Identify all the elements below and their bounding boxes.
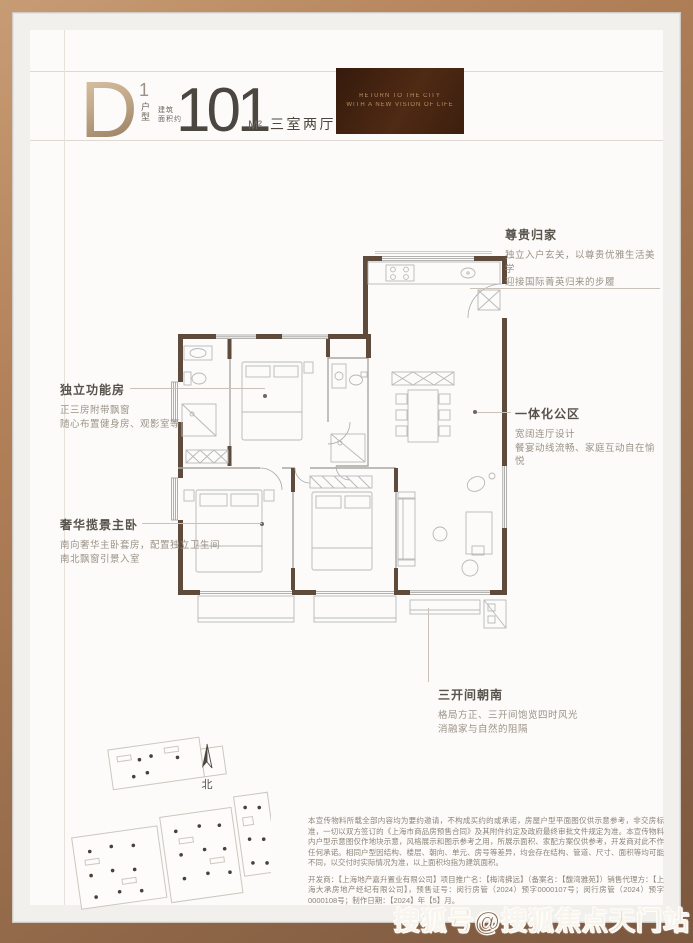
annotation-line: 餐宴动线流畅、家庭互动自在愉悦 (515, 442, 663, 469)
floor-plan (170, 250, 510, 640)
area-unit: M² (248, 118, 262, 132)
disclaimer: 本宣传物料所载全部内容均为要约邀请，不构成买约的或承诺，房屋户型平面图仅供示意参… (308, 816, 664, 912)
leader-master-bedroom (142, 523, 262, 524)
living-room-icon (398, 473, 495, 576)
annotation-title: 一体化公区 (515, 405, 663, 422)
bedroom2-bed-icon (310, 476, 372, 570)
banner-line2: WITH A NEW VISION OF LIFE (346, 101, 453, 110)
annotation-line: 格局方正、三开间饱览四时风光 (438, 709, 578, 723)
annotation-line: 随心布置健身房、观影室等 (60, 418, 180, 432)
unit-number-label: 户型 (141, 102, 152, 122)
leader-dot (473, 410, 477, 414)
annotation-title: 奢华揽景主卧 (60, 516, 220, 533)
annotation-south-facing: 三开间朝南 格局方正、三开间饱览四时风光 消融家与自然的阻隔 (438, 686, 578, 736)
north-arrow-icon (199, 742, 215, 770)
banner-line1: RETURN TO THE CITY (359, 92, 441, 101)
site-plan-icon (56, 730, 271, 920)
annotation-line: 消融家与自然的阻隔 (438, 723, 578, 737)
poster-page: D 1 户型 建筑 面积约 101 M² 三室两厅两卫 RETURN TO TH… (30, 30, 663, 905)
plan-walls (178, 256, 507, 595)
north-label: 北 (197, 776, 217, 792)
plan-windows (172, 252, 507, 595)
annotation-title: 独立功能房 (60, 381, 180, 398)
annotation-line: 独立入户玄关，以尊贵优雅生活美学 (505, 249, 663, 276)
functional-room-bed-icon (242, 362, 313, 440)
annotation-line: 正三房附带飘窗 (60, 404, 180, 418)
unit-number: 1 (139, 80, 149, 101)
poster-frame: D 1 户型 建筑 面积约 101 M² 三室两厅两卫 RETURN TO TH… (0, 0, 693, 943)
annotation-title: 三开间朝南 (438, 686, 578, 703)
disclaimer-para1: 本宣传物料所载全部内容均为要约邀请，不构成买约的或承诺，房屋户型平面图仅供示意参… (308, 816, 664, 869)
annotation-entry: 尊贵归家 独立入户玄关，以尊贵优雅生活美学 迎接国际菁英归来的步履 (505, 226, 663, 290)
leader-public-area (475, 412, 511, 413)
leader-entry (470, 288, 660, 289)
unit-letter: D (80, 70, 138, 150)
balcony-icon (198, 596, 506, 628)
dining-set-icon (392, 372, 454, 442)
leader-south-facing (428, 608, 429, 682)
annotation-title: 尊贵归家 (505, 226, 663, 243)
north-indicator: 北 (197, 742, 217, 792)
plan-doors (260, 284, 502, 490)
area-value: 101 (176, 80, 267, 142)
leader-functional-room (130, 388, 265, 389)
bathroom1-fixtures-icon (182, 346, 228, 463)
annotation-line: 宽阔连厅设计 (515, 428, 663, 442)
header-banner: RETURN TO THE CITY WITH A NEW VISION OF … (336, 68, 464, 134)
annotation-line: 南向奢华主卧套房，配置独立卫生间 (60, 539, 220, 553)
floor-plan-area (170, 250, 510, 640)
plan-leader-dots (260, 394, 267, 526)
kitchen-counter-icon (368, 262, 500, 310)
plan-wall-openings (177, 255, 508, 596)
bathroom2-fixtures-icon (331, 364, 367, 462)
annotation-public-area: 一体化公区 宽阔连厅设计 餐宴动线流畅、家庭互动自在愉悦 (515, 405, 663, 469)
watermark: 搜狐号@搜狐焦点天门站 (394, 901, 690, 938)
annotation-line: 南北飘窗引景入室 (60, 553, 220, 567)
site-key-plan (56, 730, 271, 925)
